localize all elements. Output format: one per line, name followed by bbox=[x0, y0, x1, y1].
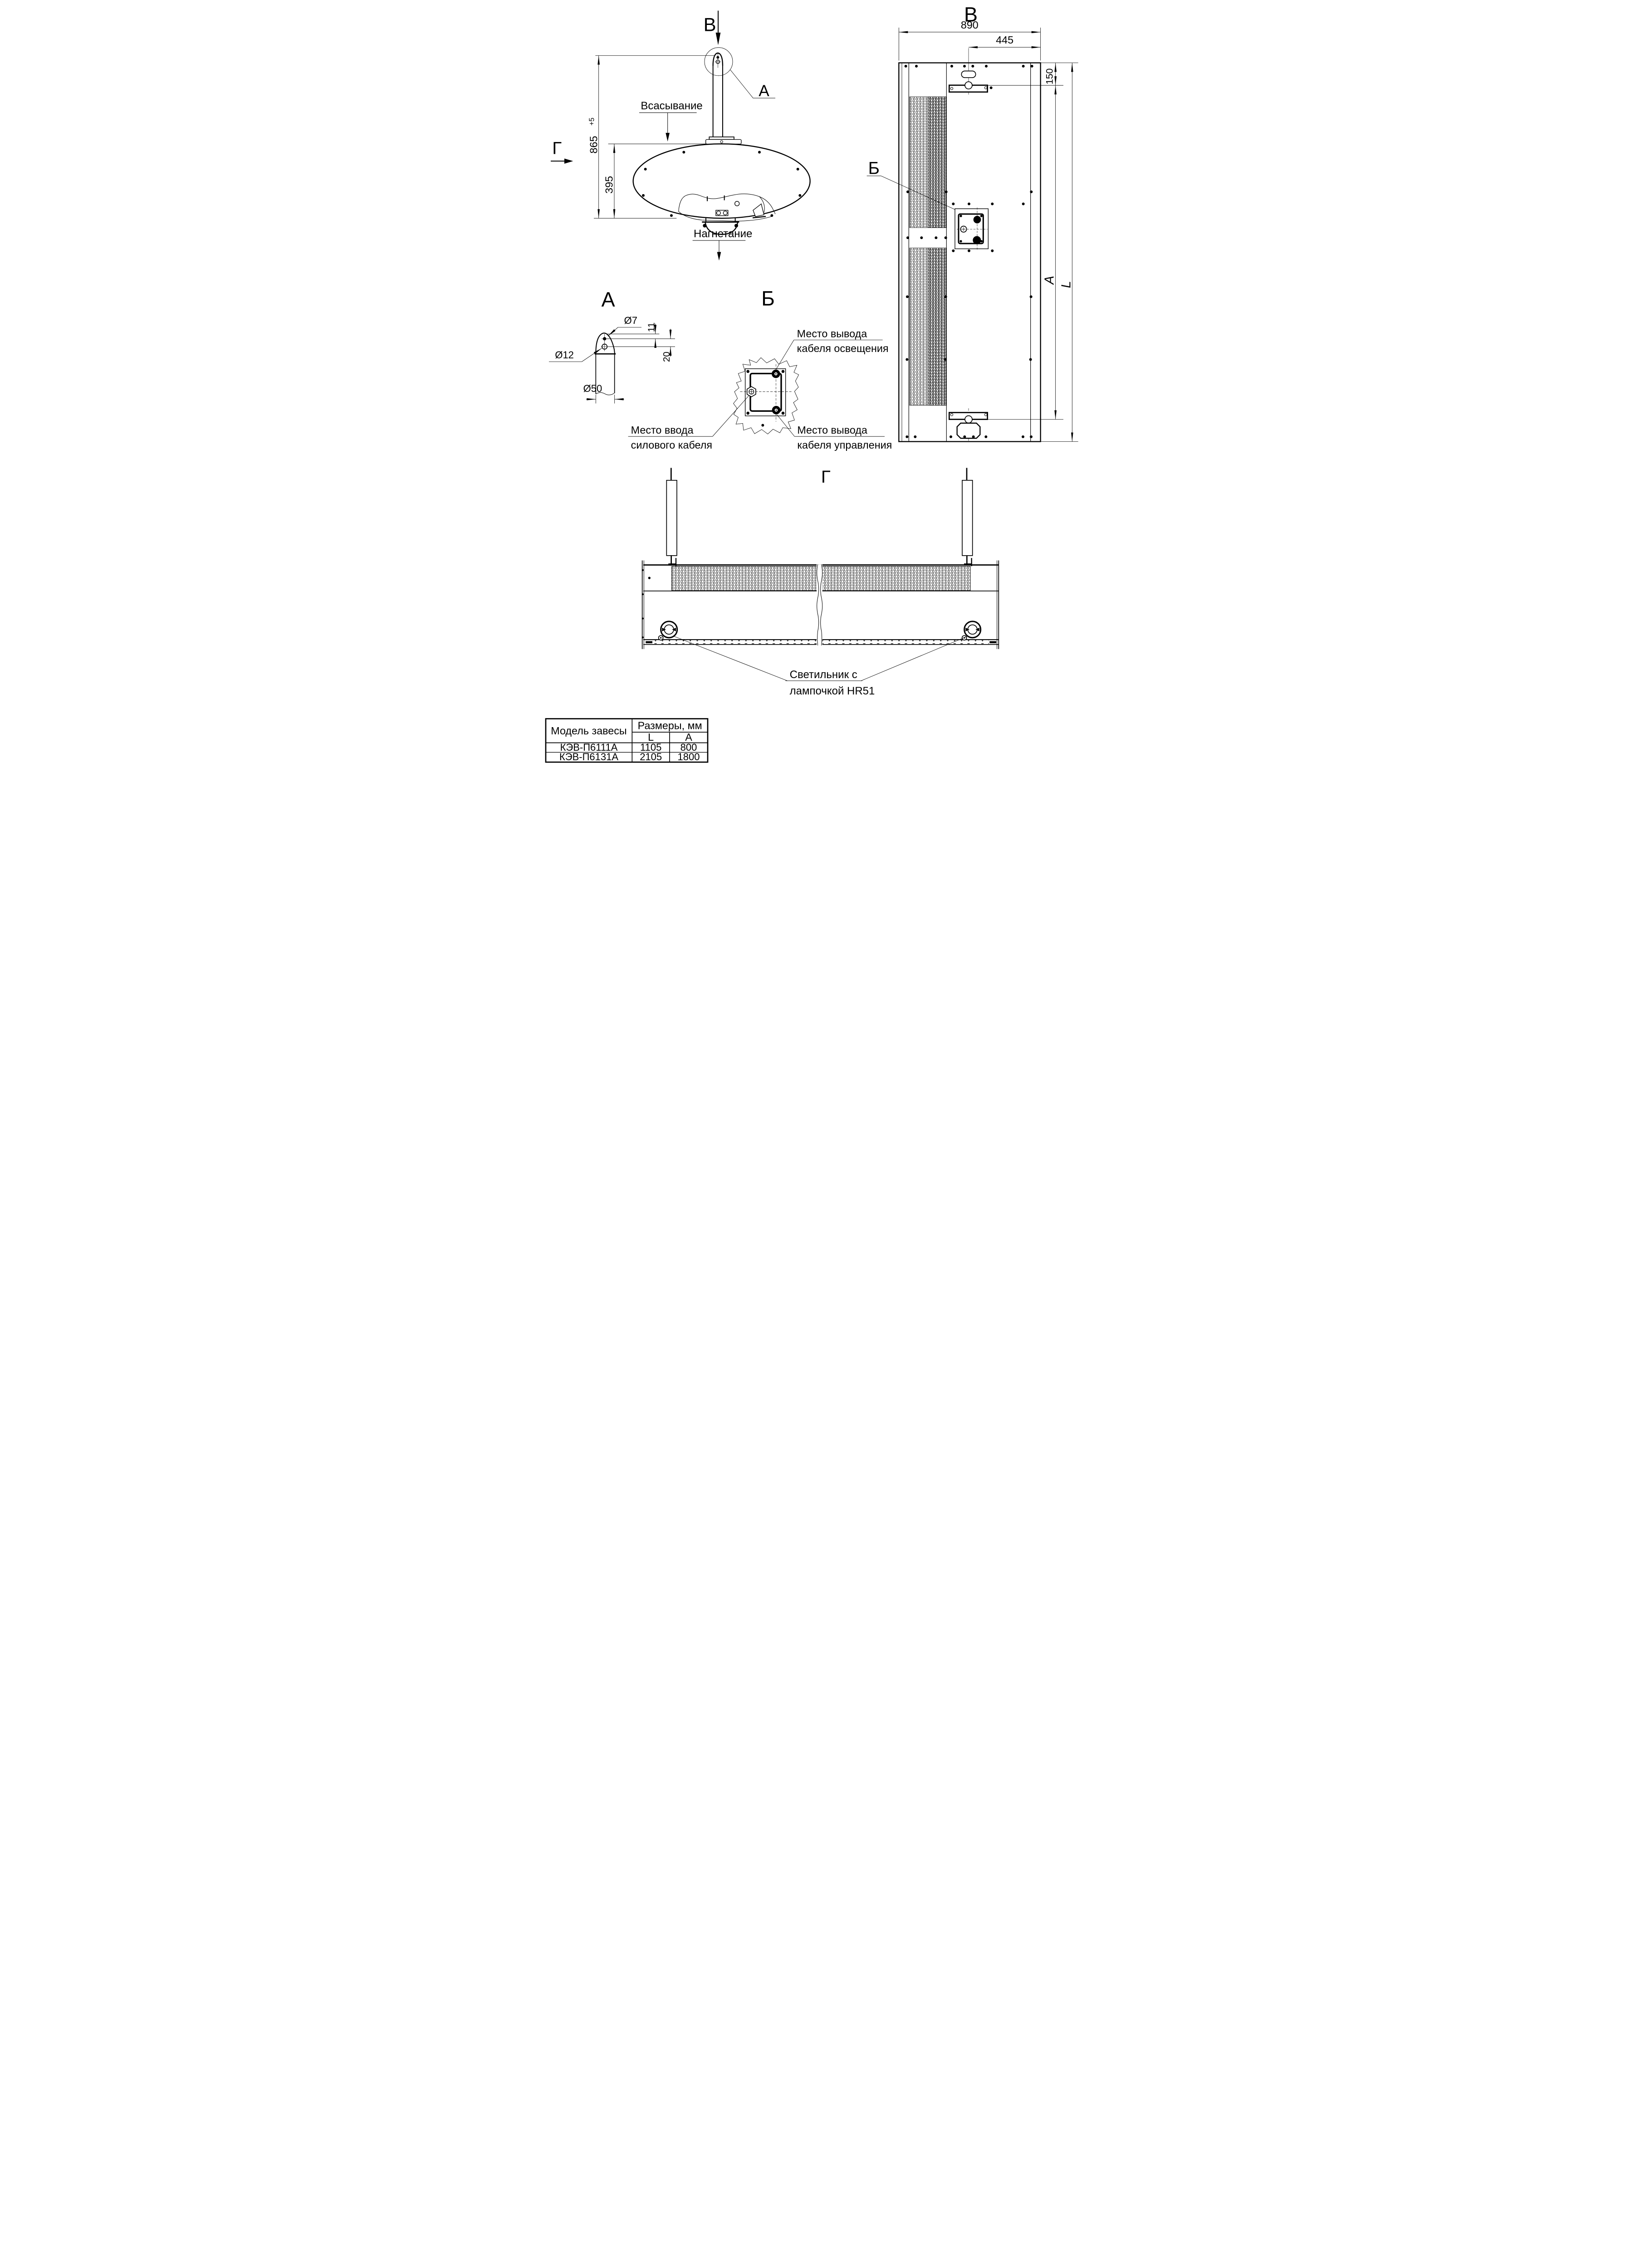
dim-395: 395 bbox=[603, 144, 706, 218]
view-marker-g-arrow-icon bbox=[551, 159, 573, 164]
detail-a-dims: 11 20 Ø7 Ø12 Ø50 bbox=[549, 315, 675, 403]
gland-bottom bbox=[973, 236, 981, 244]
view-marker-g-letter: Г bbox=[552, 139, 562, 158]
detail-a-callout-letter: А bbox=[759, 82, 769, 100]
lighting-cable-gland bbox=[772, 370, 780, 378]
bottom-mount-hole bbox=[965, 416, 972, 423]
view-marker-b-arrow-icon bbox=[716, 11, 721, 45]
lighting-cable-line1: Место вывода bbox=[797, 328, 867, 340]
control-cable-gland bbox=[772, 406, 781, 415]
discharge-arrow-icon bbox=[717, 252, 721, 261]
power-cable-label: Место ввода силового кабеля bbox=[628, 396, 749, 451]
mounting-collar bbox=[706, 137, 741, 144]
power-cable-line2: силового кабеля bbox=[631, 439, 712, 451]
break-line bbox=[817, 564, 822, 645]
detail-b-title: Б bbox=[761, 287, 775, 310]
view-marker-b-letter: В bbox=[704, 14, 716, 35]
gland-top bbox=[974, 216, 981, 224]
table-row2-l: 2105 bbox=[640, 751, 662, 763]
detail-b: Б bbox=[628, 287, 892, 451]
detail-a-title: А bbox=[602, 288, 615, 311]
suction-label-group: Всасывание bbox=[639, 100, 703, 142]
front-view: В bbox=[867, 3, 1078, 442]
table-header-dimensions: Размеры, мм bbox=[638, 720, 702, 732]
dim-d12-label: Ø12 bbox=[555, 349, 574, 361]
dim-865: 865 +5 bbox=[588, 56, 715, 219]
top-slot bbox=[961, 71, 975, 78]
table-header-l: L bbox=[648, 731, 654, 743]
control-cable-line1: Место вывода bbox=[797, 424, 867, 436]
lighting-cable-label: Место вывода кабеля освещения bbox=[776, 328, 888, 370]
power-cable-entry bbox=[747, 386, 756, 397]
suspension-post-left bbox=[666, 468, 677, 567]
dim-150-value: 150 bbox=[1044, 68, 1055, 84]
dim-11-value: 11 bbox=[646, 323, 657, 332]
dim-L-label: L bbox=[1059, 281, 1073, 288]
bottom-view-title: Г bbox=[821, 467, 831, 487]
dim-865-value: 865 bbox=[588, 136, 600, 154]
drawing-page: В Г А bbox=[542, 0, 1083, 763]
outlet-octagon bbox=[957, 423, 980, 438]
dim-d50-label: Ø50 bbox=[583, 383, 602, 394]
table-header-model: Модель завесы bbox=[551, 725, 627, 737]
table-row2-model: КЭВ-П6131А bbox=[559, 751, 618, 763]
intake-grille-upper bbox=[910, 97, 946, 228]
junction-box-front bbox=[955, 208, 988, 250]
bottom-view: Г bbox=[642, 467, 999, 697]
lighting-cable-line2: кабеля освещения bbox=[797, 342, 889, 354]
dim-445-value: 445 bbox=[996, 34, 1013, 46]
model-table: Модель завесы Размеры, мм L A КЭВ-П6111А… bbox=[546, 719, 708, 763]
table-row2-a: 1800 bbox=[678, 751, 700, 763]
air-curtain-technical-drawing: В Г А bbox=[542, 0, 1083, 763]
dim-890-value: 890 bbox=[961, 19, 979, 31]
suspension-post-right bbox=[962, 468, 973, 567]
power-cable-line1: Место ввода bbox=[631, 424, 694, 436]
control-cable-line2: кабеля управления bbox=[797, 439, 892, 451]
suspension-stem bbox=[713, 53, 723, 137]
lamp-left bbox=[659, 621, 677, 640]
lamp-label-line1: Светильник с bbox=[790, 669, 857, 681]
dim-395-value: 395 bbox=[603, 176, 615, 194]
lamp-label-line2: лампочкой HR51 bbox=[790, 685, 875, 697]
dim-20-value: 20 bbox=[661, 352, 672, 362]
body-ellipse bbox=[633, 144, 810, 218]
table-header-a: A bbox=[685, 731, 692, 743]
top-mount-hole bbox=[965, 82, 972, 89]
dim-L: L bbox=[1041, 63, 1078, 442]
suction-label: Всасывание bbox=[641, 100, 702, 112]
junction-callout-letter: Б bbox=[868, 159, 880, 178]
discharge-label-group: Нагнетание bbox=[693, 228, 753, 261]
dim-A-label: A bbox=[1043, 276, 1057, 285]
side-view: В Г А bbox=[551, 11, 810, 261]
dim-865-tolerance: +5 bbox=[588, 117, 596, 125]
detail-a: А 11 20 Ø7 Ø12 bbox=[549, 288, 675, 404]
suction-arrow-icon bbox=[666, 133, 670, 142]
dim-445: 445 bbox=[969, 34, 1041, 47]
ellipse-rim-screws bbox=[642, 151, 801, 217]
dim-890: 890 bbox=[899, 19, 1040, 61]
discharge-label: Нагнетание bbox=[694, 228, 752, 240]
intake-grille-lower bbox=[910, 248, 946, 406]
stem-hole-small bbox=[716, 56, 719, 59]
dim-d7-label: Ø7 bbox=[624, 315, 637, 326]
